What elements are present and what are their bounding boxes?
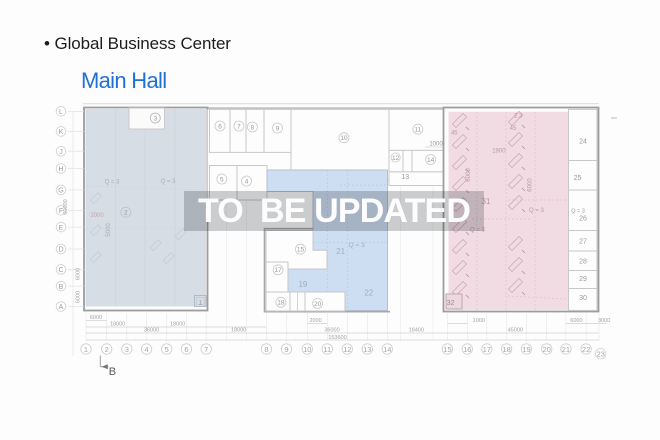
svg-text:18000: 18000 bbox=[170, 321, 185, 327]
svg-text:26: 26 bbox=[579, 215, 587, 222]
svg-text:6: 6 bbox=[184, 345, 188, 354]
svg-text:20: 20 bbox=[314, 301, 322, 308]
svg-text:1: 1 bbox=[84, 345, 88, 354]
svg-text:6000: 6000 bbox=[466, 168, 472, 182]
svg-text:12: 12 bbox=[392, 155, 400, 162]
svg-text:36000: 36000 bbox=[144, 327, 159, 333]
svg-text:11: 11 bbox=[323, 345, 331, 354]
svg-text:18400: 18400 bbox=[409, 328, 424, 334]
svg-text:6: 6 bbox=[218, 123, 222, 130]
svg-text:27: 27 bbox=[579, 238, 587, 245]
svg-text:15: 15 bbox=[297, 247, 305, 254]
svg-text:B: B bbox=[109, 366, 116, 378]
svg-text:Q = 3: Q = 3 bbox=[529, 208, 545, 214]
svg-text:4: 4 bbox=[245, 178, 249, 185]
svg-text:14: 14 bbox=[383, 345, 391, 354]
svg-text:8: 8 bbox=[264, 345, 268, 354]
svg-text:3: 3 bbox=[125, 345, 129, 354]
svg-text:B: B bbox=[59, 284, 64, 291]
svg-text:18: 18 bbox=[277, 300, 285, 307]
svg-text:19: 19 bbox=[298, 280, 307, 289]
svg-text:6000: 6000 bbox=[76, 268, 82, 280]
svg-text:L: L bbox=[59, 109, 63, 116]
svg-text:1900: 1900 bbox=[492, 149, 506, 155]
svg-text:22: 22 bbox=[582, 345, 590, 354]
svg-text:2: 2 bbox=[124, 210, 128, 217]
svg-text:2.3: 2.3 bbox=[514, 113, 523, 119]
svg-text:18: 18 bbox=[502, 345, 510, 354]
svg-text:45000: 45000 bbox=[508, 328, 523, 334]
svg-text:24: 24 bbox=[579, 139, 587, 146]
svg-text:A: A bbox=[59, 304, 64, 311]
svg-text:13: 13 bbox=[401, 174, 409, 181]
svg-text:16: 16 bbox=[463, 345, 471, 354]
svg-text:17: 17 bbox=[274, 267, 282, 274]
svg-text:D: D bbox=[58, 247, 63, 254]
svg-text:2: 2 bbox=[105, 345, 109, 354]
svg-text:21: 21 bbox=[336, 247, 345, 256]
svg-text:60000: 60000 bbox=[63, 199, 69, 214]
svg-text:6000: 6000 bbox=[527, 178, 533, 192]
svg-text:28: 28 bbox=[579, 259, 587, 266]
svg-text:Q = 3: Q = 3 bbox=[105, 180, 121, 186]
svg-text:6000: 6000 bbox=[570, 318, 582, 324]
svg-text:2000: 2000 bbox=[90, 213, 104, 219]
svg-text:15: 15 bbox=[443, 345, 451, 354]
svg-text:45: 45 bbox=[451, 130, 458, 136]
svg-text:Q = 3: Q = 3 bbox=[571, 209, 585, 215]
svg-text:1000: 1000 bbox=[473, 318, 485, 324]
svg-text:32: 32 bbox=[447, 300, 455, 307]
svg-text:Q = 3: Q = 3 bbox=[161, 179, 177, 185]
svg-text:6000: 6000 bbox=[90, 315, 102, 321]
svg-text:11: 11 bbox=[415, 127, 422, 134]
svg-text:H: H bbox=[58, 166, 63, 173]
svg-text:18000: 18000 bbox=[110, 321, 125, 327]
svg-text:6000: 6000 bbox=[76, 291, 82, 303]
svg-text:20: 20 bbox=[543, 345, 551, 354]
svg-text:3000: 3000 bbox=[598, 318, 610, 324]
svg-text:18000: 18000 bbox=[231, 327, 246, 333]
svg-text:Q = 3: Q = 3 bbox=[349, 242, 365, 249]
svg-text:7: 7 bbox=[204, 345, 208, 354]
svg-text:13: 13 bbox=[363, 345, 371, 354]
svg-text:C: C bbox=[58, 267, 63, 274]
svg-text:22: 22 bbox=[364, 289, 373, 298]
svg-text:10: 10 bbox=[303, 345, 311, 354]
svg-text:7: 7 bbox=[237, 123, 241, 130]
svg-text:1000: 1000 bbox=[429, 141, 443, 147]
svg-text:10: 10 bbox=[340, 135, 348, 142]
svg-text:29: 29 bbox=[579, 276, 587, 283]
svg-text:E: E bbox=[59, 225, 64, 232]
svg-text:19: 19 bbox=[522, 345, 530, 354]
svg-text:5: 5 bbox=[220, 176, 224, 183]
svg-text:9: 9 bbox=[276, 125, 280, 132]
svg-text:G: G bbox=[58, 188, 63, 195]
svg-text:30: 30 bbox=[579, 295, 587, 302]
svg-text:2000: 2000 bbox=[309, 318, 321, 324]
svg-text:14: 14 bbox=[427, 157, 435, 164]
svg-text:17: 17 bbox=[483, 345, 491, 354]
svg-text:21: 21 bbox=[562, 345, 570, 354]
svg-text:25: 25 bbox=[574, 175, 582, 182]
svg-text:12: 12 bbox=[343, 345, 351, 354]
svg-text:J: J bbox=[59, 149, 63, 156]
svg-text:45: 45 bbox=[510, 126, 517, 132]
svg-text:8: 8 bbox=[251, 124, 255, 131]
svg-text:36000: 36000 bbox=[324, 328, 339, 334]
svg-text:K: K bbox=[59, 129, 64, 136]
svg-text:23: 23 bbox=[597, 349, 605, 358]
svg-text:3: 3 bbox=[153, 115, 157, 122]
svg-text:4: 4 bbox=[145, 345, 149, 354]
svg-text:5000: 5000 bbox=[106, 223, 112, 237]
svg-text:9: 9 bbox=[284, 345, 288, 354]
svg-text:153600: 153600 bbox=[328, 335, 346, 341]
svg-text:5: 5 bbox=[165, 345, 169, 354]
